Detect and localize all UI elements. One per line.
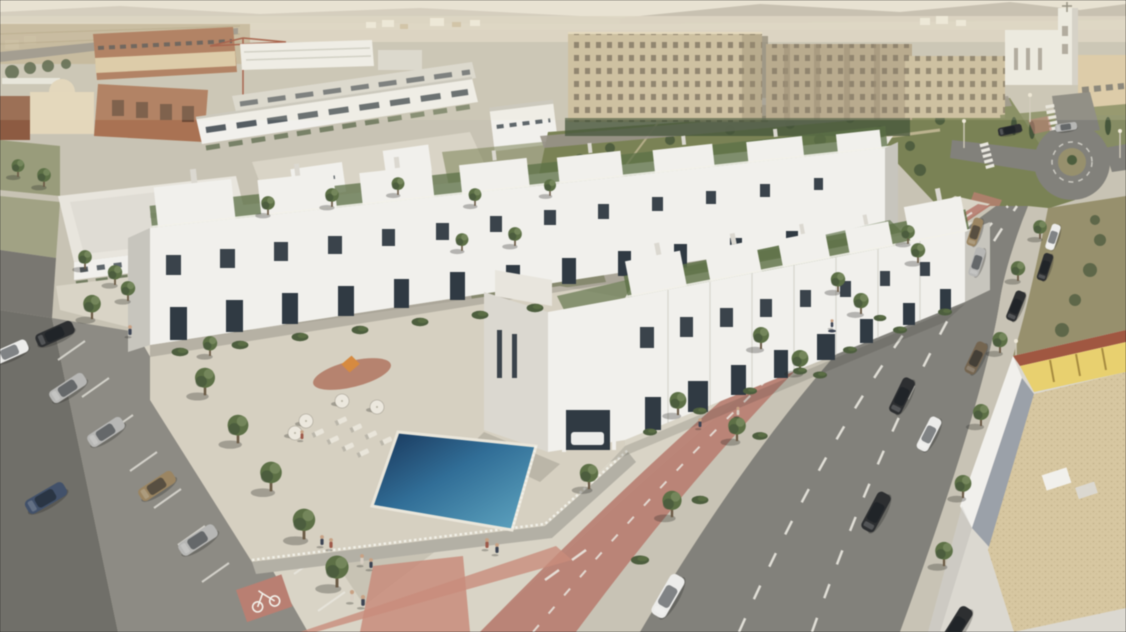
render-canvas: Aerial render of a white townhouse resid… [0,0,1126,632]
atmospheric-haze [0,0,1126,120]
garaged-car [571,432,604,445]
aerial-render: Aerial render of a white townhouse resid… [0,0,1126,632]
